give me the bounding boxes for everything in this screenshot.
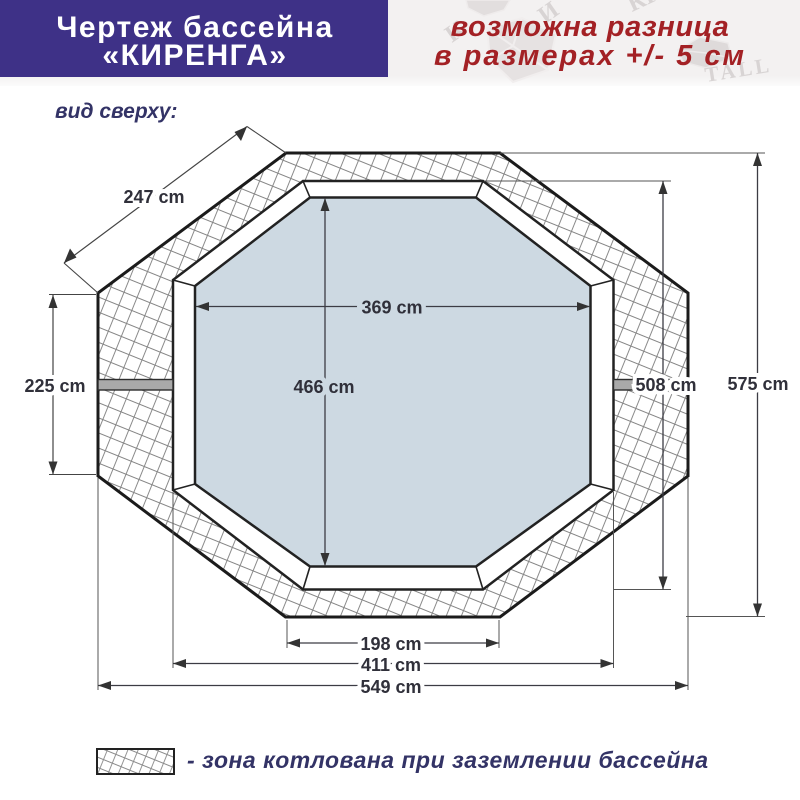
svg-text:411 cm: 411 cm <box>361 655 421 675</box>
svg-text:508 cm: 508 cm <box>635 375 696 395</box>
svg-text:575 cm: 575 cm <box>727 374 788 394</box>
svg-text:549 cm: 549 cm <box>360 677 421 697</box>
svg-text:225 cm: 225 cm <box>24 376 85 396</box>
svg-text:369 cm: 369 cm <box>361 298 422 318</box>
svg-text:466 cm: 466 cm <box>293 377 354 397</box>
svg-text:- зона котлована при заземлени: - зона котлована при заземлении бассейна <box>187 747 709 773</box>
svg-text:198 cm: 198 cm <box>360 634 421 654</box>
svg-text:247 cm: 247 cm <box>123 187 184 207</box>
